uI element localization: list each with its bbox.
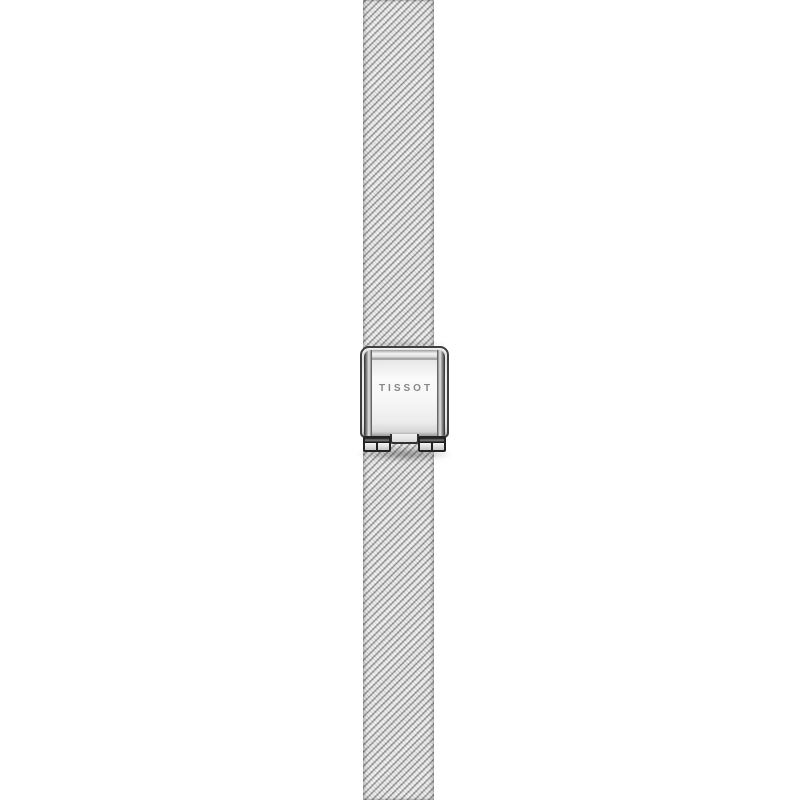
clasp-center-lip — [390, 434, 419, 444]
clasp-hinge-left — [363, 436, 391, 452]
product-photo: TISSOT — [0, 0, 800, 800]
clasp-top-fold — [369, 350, 440, 360]
hinge-cell — [433, 443, 444, 451]
clasp-plate: TISSOT — [360, 346, 449, 438]
brand-engraving: TISSOT — [362, 383, 447, 394]
hinge-cell — [365, 443, 376, 451]
clasp-hinge-right — [418, 436, 446, 452]
hinge-cell — [420, 443, 431, 451]
folding-clasp: TISSOT — [360, 346, 449, 452]
hinge-cell — [378, 443, 389, 451]
